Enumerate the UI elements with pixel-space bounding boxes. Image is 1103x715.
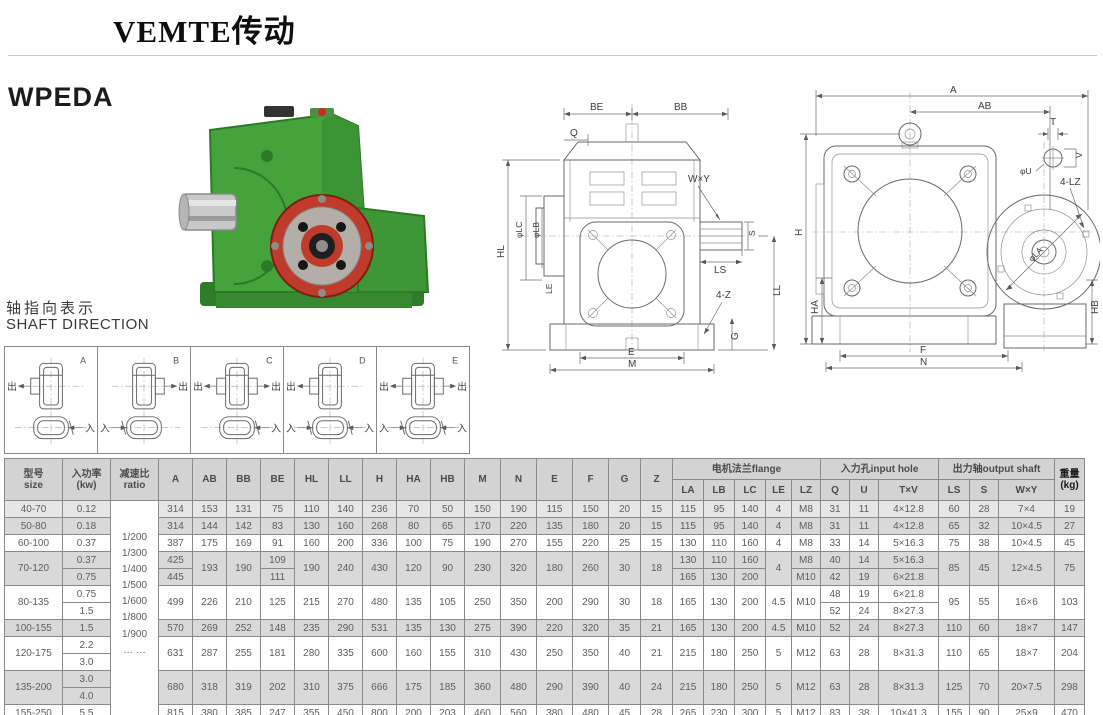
spec-table-cell: 204: [1055, 637, 1085, 671]
spec-table-cell: 19: [850, 569, 879, 586]
shaft-direction-panel: 出入A出入B出出入C出入入D出出入入E: [4, 346, 470, 454]
spec-table-cell: 287: [193, 637, 227, 671]
spec-table-header-cell: H: [363, 459, 397, 501]
spec-table-cell: 135: [537, 518, 573, 535]
spec-table-cell: 75: [261, 501, 295, 518]
spec-table-cell: 236: [363, 501, 397, 518]
spec-table-cell: 153: [193, 501, 227, 518]
dim-label-4z: 4-Z: [716, 290, 731, 301]
spec-table-cell: 18: [641, 552, 673, 586]
spec-table-cell: 480: [501, 671, 537, 705]
spec-table-cell: 155: [537, 535, 573, 552]
spec-table-cell: 680: [159, 671, 193, 705]
spec-table-cell: 390: [501, 620, 537, 637]
spec-table-cell: 142: [227, 518, 261, 535]
spec-table-cell: 193: [193, 552, 227, 586]
spec-table-cell: 11: [850, 501, 879, 518]
spec-table-header-cell: HL: [295, 459, 329, 501]
spec-table-cell: 631: [159, 637, 193, 671]
spec-table-cell: 111: [261, 569, 295, 586]
spec-table-cell: 355: [295, 705, 329, 715]
spec-table-header-cell: Z: [641, 459, 673, 501]
spec-table-cell: 125: [939, 671, 970, 705]
spec-table-cell: 42: [821, 569, 850, 586]
spec-table-cell: 18×7: [999, 637, 1055, 671]
spec-table-cell: M10: [792, 620, 821, 637]
spec-table-cell: 240: [329, 552, 363, 586]
dim-label-hl: HL: [496, 245, 507, 258]
shaft-direction-cell-c: 出出入C: [191, 347, 284, 453]
spec-table-cell: 135: [397, 620, 431, 637]
out-label: 出: [286, 380, 296, 393]
spec-table-cell: 20: [609, 518, 641, 535]
dim-label-wxy: W×Y: [688, 174, 710, 185]
spec-table-cell: 21: [641, 637, 673, 671]
shaft-direction-cell-e: 出出入入E: [377, 347, 469, 453]
spec-table-cell: 60-100: [5, 535, 63, 552]
spec-table-header-cell: 入功率 (kw): [63, 459, 111, 501]
dim-label-f: F: [920, 345, 926, 356]
spec-table-cell: M12: [792, 637, 821, 671]
spec-table-cell: 45: [1055, 535, 1085, 552]
spec-table-cell: 45: [970, 552, 999, 586]
cell-letter: D: [359, 355, 365, 365]
spec-table-cell: 180: [573, 518, 609, 535]
spec-table-cell: 21: [641, 620, 673, 637]
spec-table-cell: 0.37: [63, 535, 111, 552]
spec-table-cell: 60: [970, 620, 999, 637]
spec-table-cell: 15: [641, 535, 673, 552]
dim-label-q: Q: [570, 128, 578, 139]
spec-table-cell: 95: [704, 518, 735, 535]
spec-table-row: 135-2003.0680318319202310375666175185360…: [5, 671, 1085, 688]
spec-table-cell: 160: [397, 637, 431, 671]
shaft-direction-diagram: 出出入入E: [377, 347, 469, 453]
spec-table-cell: M10: [792, 569, 821, 586]
spec-table-row: 70-1200.37425193190109190240430120902303…: [5, 552, 1085, 569]
spec-table-cell: 203: [431, 705, 465, 715]
spec-table-cell: 8×31.3: [879, 637, 939, 671]
spec-table-cell: 202: [261, 671, 295, 705]
spec-table-cell: 270: [329, 586, 363, 620]
page-title: WPEDA: [8, 82, 114, 113]
spec-table-cell: 5×16.3: [879, 552, 939, 569]
dim-label-s: S: [747, 230, 757, 236]
spec-table-cell: 110: [939, 620, 970, 637]
dim-label-t: T: [1050, 117, 1056, 128]
out-label: 出: [193, 380, 203, 393]
spec-table-cell: 8×27.3: [879, 620, 939, 637]
spec-table-cell: 250: [465, 586, 501, 620]
spec-table-cell: 130: [704, 586, 735, 620]
spec-table-cell: 140: [735, 518, 766, 535]
spec-table-cell: 38: [970, 535, 999, 552]
spec-table-cell: 140: [329, 501, 363, 518]
spec-table-cell: 190: [465, 535, 501, 552]
spec-table-cell: 200: [735, 620, 766, 637]
spec-table-cell: 425: [159, 552, 193, 569]
spec-table-cell: 310: [465, 637, 501, 671]
dim-label-u: φU: [1020, 166, 1032, 176]
spec-table-header-cell: A: [159, 459, 193, 501]
spec-table-cell: 24: [641, 671, 673, 705]
spec-table-cell: 110: [704, 552, 735, 569]
spec-table-header-cell: 型号 size: [5, 459, 63, 501]
spec-table-cell: 32: [970, 518, 999, 535]
in-label: 入: [457, 424, 467, 435]
dim-label-bb: BB: [674, 102, 688, 113]
spec-table-header-cell: LS: [939, 480, 970, 501]
spec-table-cell: 250: [735, 637, 766, 671]
spec-table-cell: 80: [397, 518, 431, 535]
spec-table-cell: 100-155: [5, 620, 63, 637]
spec-table-cell: 247: [261, 705, 295, 715]
spec-table-cell: 12×4.5: [999, 552, 1055, 586]
spec-table-cell: 5: [766, 671, 792, 705]
shaft-direction-cell-d: 出入入D: [284, 347, 377, 453]
spec-table-header-cell: 电机法兰flange: [673, 459, 821, 480]
spec-table-header-cell: HA: [397, 459, 431, 501]
spec-table-cell: 63: [821, 671, 850, 705]
spec-table-header-cell: 减速比 ratio: [111, 459, 159, 501]
in-label: 入: [286, 424, 296, 435]
spec-table-cell: 160: [329, 518, 363, 535]
spec-table-header-cell: LC: [735, 480, 766, 501]
spec-table-cell: 336: [363, 535, 397, 552]
shaft-direction-diagram: 出入入D: [284, 347, 376, 453]
spec-table-cell: 90: [431, 552, 465, 586]
spec-table-cell: 110: [704, 535, 735, 552]
spec-table-header-cell: T×V: [879, 480, 939, 501]
spec-table-cell: 165: [673, 620, 704, 637]
spec-table-cell: 215: [295, 586, 329, 620]
out-label: 出: [271, 380, 281, 393]
spec-table-cell: 215: [673, 671, 704, 705]
spec-table-cell: 30: [609, 586, 641, 620]
spec-table-cell: 200: [397, 705, 431, 715]
spec-table-header-cell: BE: [261, 459, 295, 501]
spec-table-cell: M8: [792, 501, 821, 518]
spec-table-cell: 570: [159, 620, 193, 637]
spec-table-cell: 70: [397, 501, 431, 518]
spec-table-cell: 100: [397, 535, 431, 552]
spec-table-cell: 319: [227, 671, 261, 705]
spec-table-cell: M8: [792, 535, 821, 552]
spec-table-cell: 380: [537, 705, 573, 715]
spec-table-cell: 95: [704, 501, 735, 518]
spec-table-cell: 0.37: [63, 552, 111, 569]
spec-table-row: 50-800.183141441428313016026880651702201…: [5, 518, 1085, 535]
spec-table-cell: 160: [735, 535, 766, 552]
spec-table-cell: 115: [673, 518, 704, 535]
spec-table-cell: 20×7.5: [999, 671, 1055, 705]
spec-table-cell: 4: [766, 535, 792, 552]
spec-table-cell: 4.5: [766, 586, 792, 620]
spec-table-cell: 290: [329, 620, 363, 637]
spec-table-cell: 8×31.3: [879, 671, 939, 705]
spec-table-cell: 105: [431, 586, 465, 620]
spec-table-cell: 120-175: [5, 637, 63, 671]
spec-table-cell: 160: [735, 552, 766, 569]
shaft-direction-title-zh: 轴指向表示: [6, 301, 149, 317]
spec-table-cell: 40-70: [5, 501, 63, 518]
spec-table-cell: 31: [821, 518, 850, 535]
spec-table-cell: 815: [159, 705, 193, 715]
spec-table-cell: 200: [329, 535, 363, 552]
spec-table-cell: 320: [501, 552, 537, 586]
spec-table-cell: 190: [227, 552, 261, 586]
spec-table-cell: 155-250: [5, 705, 63, 715]
dim-label-be: BE: [590, 102, 604, 113]
spec-table-cell: 63: [821, 637, 850, 671]
spec-table-cell: 19: [850, 586, 879, 603]
spec-table-cell: 10×4.5: [999, 518, 1055, 535]
spec-table-cell: 2.2: [63, 637, 111, 654]
spec-table-cell: 226: [193, 586, 227, 620]
spec-table-header-cell: LB: [704, 480, 735, 501]
spec-table-cell: 24: [850, 620, 879, 637]
spec-table-cell: 24: [850, 603, 879, 620]
spec-table-cell: 4×12.8: [879, 518, 939, 535]
spec-table-cell: 215: [673, 637, 704, 671]
spec-table-cell: 155: [939, 705, 970, 715]
spec-table-cell: 18×7: [999, 620, 1055, 637]
shaft-direction-cell-b: 出入B: [98, 347, 191, 453]
spec-table-header-cell: F: [573, 459, 609, 501]
spec-table-cell: 48: [821, 586, 850, 603]
dim-label-lc: φLC: [514, 222, 524, 238]
spec-table-cell: 190: [501, 501, 537, 518]
spec-table-cell: M8: [792, 518, 821, 535]
spec-table-header-cell: LL: [329, 459, 363, 501]
spec-table-cell: 4.0: [63, 688, 111, 705]
spec-table-cell: 150: [573, 501, 609, 518]
spec-table-cell: 80-135: [5, 586, 63, 620]
spec-table-cell: 16×6: [999, 586, 1055, 620]
spec-table-cell: 40: [821, 552, 850, 569]
spec-table-cell: 480: [573, 705, 609, 715]
spec-table-cell: 144: [193, 518, 227, 535]
spec-table-cell: 175: [397, 671, 431, 705]
spec-table-cell: 40: [609, 637, 641, 671]
spec-table-cell: 165: [673, 569, 704, 586]
spec-table-cell: 290: [537, 671, 573, 705]
spec-table-cell: 8×27.3: [879, 603, 939, 620]
spec-table-cell: 4: [766, 501, 792, 518]
spec-table-header-cell: LZ: [792, 480, 821, 501]
spec-table-cell: 40: [609, 671, 641, 705]
spec-table-cell: 75: [431, 535, 465, 552]
spec-table-cell: 140: [735, 501, 766, 518]
spec-table-cell: 300: [735, 705, 766, 715]
spec-table-cell: 55: [970, 586, 999, 620]
spec-table-cell: 14: [850, 552, 879, 569]
spec-table-cell: 11: [850, 518, 879, 535]
spec-table-cell: 0.75: [63, 586, 111, 603]
spec-table-cell: 460: [465, 705, 501, 715]
in-label: 入: [379, 424, 389, 435]
spec-table-cell: 10×41.3: [879, 705, 939, 715]
catalog-page: VEMTE传动 WPEDA: [0, 0, 1103, 715]
spec-table-cell: 28: [641, 705, 673, 715]
spec-table-header-cell: E: [537, 459, 573, 501]
spec-table-cell: 666: [363, 671, 397, 705]
out-label: 出: [178, 380, 188, 393]
spec-table-cell: 25: [609, 535, 641, 552]
header-divider: [8, 55, 1097, 56]
cell-letter: B: [173, 355, 179, 365]
spec-table-cell: 135-200: [5, 671, 63, 705]
spec-table-cell: 185: [431, 671, 465, 705]
spec-table-cell: 15: [641, 518, 673, 535]
spec-table-cell: 387: [159, 535, 193, 552]
side-view-drawing: A AB φLA 4-LZ T V φU: [792, 84, 1100, 374]
spec-table-cell: 130: [673, 552, 704, 569]
spec-table-header-cell: M: [465, 459, 501, 501]
spec-table-header-cell: W×Y: [999, 480, 1055, 501]
spec-table-cell: 95: [939, 586, 970, 620]
spec-table-cell: 130: [431, 620, 465, 637]
spec-table-row: 120-1752.2631287255181280335600160155310…: [5, 637, 1085, 654]
cell-letter: E: [452, 355, 458, 365]
spec-table-cell: 120: [397, 552, 431, 586]
in-label: 入: [364, 424, 374, 435]
spec-table-cell: 103: [1055, 586, 1085, 620]
spec-table-cell: 250: [537, 637, 573, 671]
spec-table-header-cell: 重量 (kg): [1055, 459, 1085, 501]
spec-table-cell: 65: [431, 518, 465, 535]
spec-table-cell: 70-120: [5, 552, 63, 586]
spec-table-cell: 5: [766, 637, 792, 671]
spec-table-header-cell: 入力孔input hole: [821, 459, 939, 480]
spec-table-cell: 200: [537, 586, 573, 620]
in-label: 入: [271, 424, 281, 435]
spec-table-cell: 314: [159, 518, 193, 535]
spec-table-cell: 5×16.3: [879, 535, 939, 552]
spec-table-cell: 380: [193, 705, 227, 715]
spec-table-cell: 181: [261, 637, 295, 671]
spec-table-cell: 5.5: [63, 705, 111, 715]
spec-table-header-cell: LE: [766, 480, 792, 501]
spec-table-cell: 19: [1055, 501, 1085, 518]
spec-table-cell: 310: [295, 671, 329, 705]
dim-label-hb: HB: [1090, 300, 1100, 314]
spec-table-cell: 4: [766, 518, 792, 535]
spec-table-cell: 200: [735, 586, 766, 620]
spec-table-cell: 50-80: [5, 518, 63, 535]
spec-table-cell: 268: [363, 518, 397, 535]
spec-table-cell: 70: [970, 671, 999, 705]
spec-table-cell: 28: [850, 671, 879, 705]
dim-label-4lz: 4-LZ: [1060, 177, 1081, 188]
spec-table-cell: 83: [261, 518, 295, 535]
spec-table-cell: M12: [792, 705, 821, 715]
spec-table-cell: 220: [501, 518, 537, 535]
spec-table-cell: 320: [573, 620, 609, 637]
spec-table-cell: 25×9: [999, 705, 1055, 715]
spec-table-cell: 135: [397, 586, 431, 620]
spec-table-cell: M10: [792, 586, 821, 620]
spec-table-cell: 230: [704, 705, 735, 715]
spec-table-cell: 470: [1055, 705, 1085, 715]
spec-table-cell: 360: [465, 671, 501, 705]
spec-table-row: 60-1000.37387175169911602003361007519027…: [5, 535, 1085, 552]
spec-table-cell: 169: [227, 535, 261, 552]
spec-table-cell: 499: [159, 586, 193, 620]
spec-table-cell: 170: [465, 518, 501, 535]
spec-table-cell: 28: [970, 501, 999, 518]
dim-label-ls: LS: [714, 265, 727, 276]
spec-table-cell: 180: [704, 637, 735, 671]
spec-table-cell: 150: [465, 501, 501, 518]
spec-table-cell: 210: [227, 586, 261, 620]
spec-table-cell: 148: [261, 620, 295, 637]
shaft-direction-diagram: 出出入C: [191, 347, 283, 453]
spec-table-cell: 220: [573, 535, 609, 552]
spec-table-cell: 90: [970, 705, 999, 715]
spec-table-header-cell: 出力轴output shaft: [939, 459, 1055, 480]
spec-table-cell: 6×21.8: [879, 569, 939, 586]
spec-table-cell: 275: [465, 620, 501, 637]
spec-table-cell: 252: [227, 620, 261, 637]
spec-table-cell: 190: [295, 552, 329, 586]
spec-table-cell: 3.0: [63, 654, 111, 671]
spec-table-cell: 180: [704, 671, 735, 705]
spec-table-cell: 65: [939, 518, 970, 535]
spec-table-cell: 131: [227, 501, 261, 518]
spec-table-cell: 350: [573, 637, 609, 671]
spec-table-cell: 318: [193, 671, 227, 705]
spec-table-cell: 50: [431, 501, 465, 518]
out-label: 出: [379, 380, 389, 393]
spec-table-cell: 155: [431, 637, 465, 671]
spec-table-cell: 109: [261, 552, 295, 569]
dim-label-m: M: [628, 359, 636, 370]
spec-table-row: 100-1551.5570269252148235290531135130275…: [5, 620, 1085, 637]
dim-label-lb: φLB: [531, 222, 541, 238]
spec-table-cell: 31: [821, 501, 850, 518]
spec-table-cell: 280: [295, 637, 329, 671]
spec-table-row: 80-1350.75499226210125215270480135105250…: [5, 586, 1085, 603]
spec-table-header-cell: LA: [673, 480, 704, 501]
out-label: 出: [457, 380, 467, 393]
dim-label-ha: HA: [810, 300, 821, 314]
spec-table-cell: 30: [609, 552, 641, 586]
spec-table-cell: 480: [363, 586, 397, 620]
spec-table-cell: 175: [193, 535, 227, 552]
spec-table-header-cell: BB: [227, 459, 261, 501]
spec-table-cell: 14: [850, 535, 879, 552]
spec-table-cell: 52: [821, 603, 850, 620]
spec-table-cell: 35: [609, 620, 641, 637]
spec-table-cell: 385: [227, 705, 261, 715]
out-label: 出: [7, 380, 17, 393]
spec-table-header-cell: G: [609, 459, 641, 501]
shaft-direction-diagram: 出入B: [98, 347, 190, 453]
spec-table-cell: 260: [573, 552, 609, 586]
front-view-drawing: BE BB Q W×Y φLC φLB HL LE LS S 4-Z G LL …: [492, 96, 792, 376]
spec-table-cell: 335: [329, 637, 363, 671]
spec-table-cell: 298: [1055, 671, 1085, 705]
shaft-direction-cell-a: 出入A: [5, 347, 98, 453]
spec-table-cell: 85: [939, 552, 970, 586]
spec-table-header-cell: AB: [193, 459, 227, 501]
spec-table-cell: 3.0: [63, 671, 111, 688]
spec-table-cell: 255: [227, 637, 261, 671]
spec-table-cell: 115: [537, 501, 573, 518]
spec-table-cell: 4×12.8: [879, 501, 939, 518]
spec-table-cell: 390: [573, 671, 609, 705]
